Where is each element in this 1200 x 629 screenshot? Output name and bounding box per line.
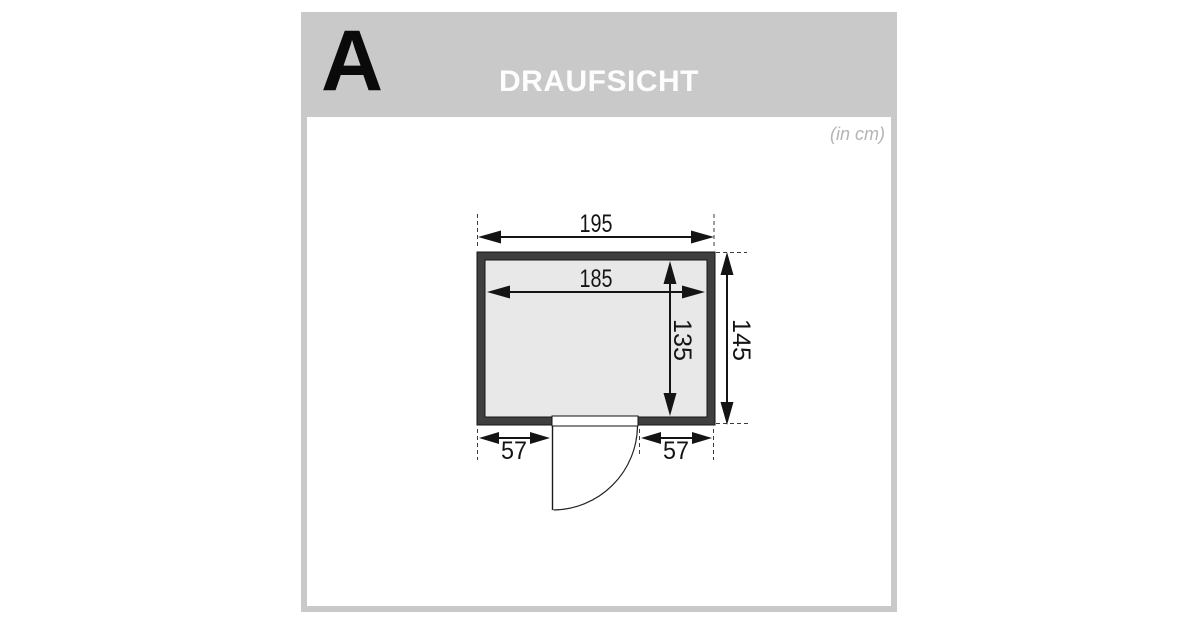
arrowhead-left-icon — [641, 432, 661, 444]
dimension-door-left: 57 — [478, 429, 551, 465]
dimension-door-right: 57 — [640, 429, 714, 465]
dimension-label-135: 135 — [668, 319, 696, 361]
drawing-area: (in cm) 195 — [307, 117, 891, 606]
dimension-label-57-left: 57 — [501, 437, 527, 465]
arrowhead-right-icon — [691, 231, 714, 244]
arrowhead-up-icon — [721, 252, 734, 275]
dimension-outer-width: 195 — [478, 210, 715, 249]
arrowhead-down-icon — [721, 402, 734, 425]
dimension-label-195: 195 — [580, 210, 613, 238]
arrowhead-left-icon — [479, 432, 499, 444]
dimension-label-185: 185 — [580, 265, 613, 293]
dimension-outer-depth: 145 — [716, 252, 755, 425]
door-swing-arc — [554, 426, 638, 510]
door-opening — [552, 416, 638, 426]
door — [552, 416, 638, 510]
arrowhead-right-icon — [692, 432, 712, 444]
dimension-label-57-right: 57 — [663, 437, 689, 465]
arrowhead-left-icon — [478, 231, 501, 244]
floor-plan-diagram: 195 185 135 — [307, 117, 891, 606]
arrowhead-right-icon — [530, 432, 550, 444]
drawing-panel: A DRAUFSICHT (in cm) 195 — [301, 12, 897, 612]
dimension-label-145: 145 — [727, 319, 755, 361]
page-title: DRAUFSICHT — [301, 65, 897, 99]
